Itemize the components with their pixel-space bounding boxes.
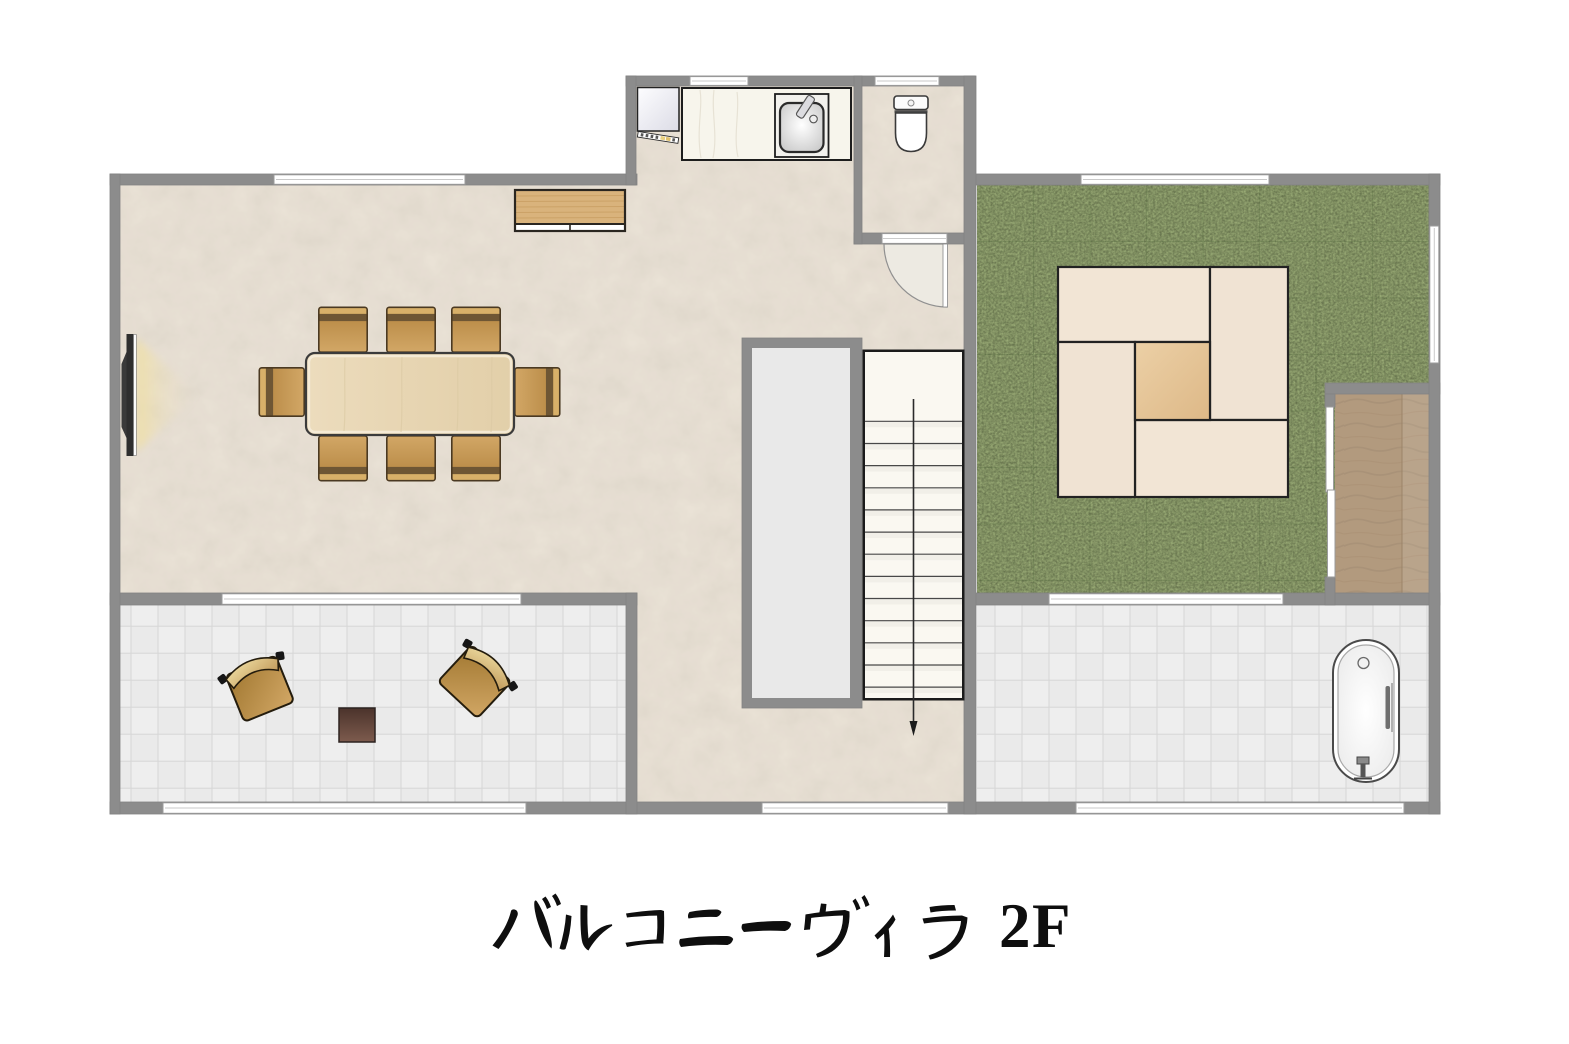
svg-text:2F: 2F (999, 891, 1072, 961)
